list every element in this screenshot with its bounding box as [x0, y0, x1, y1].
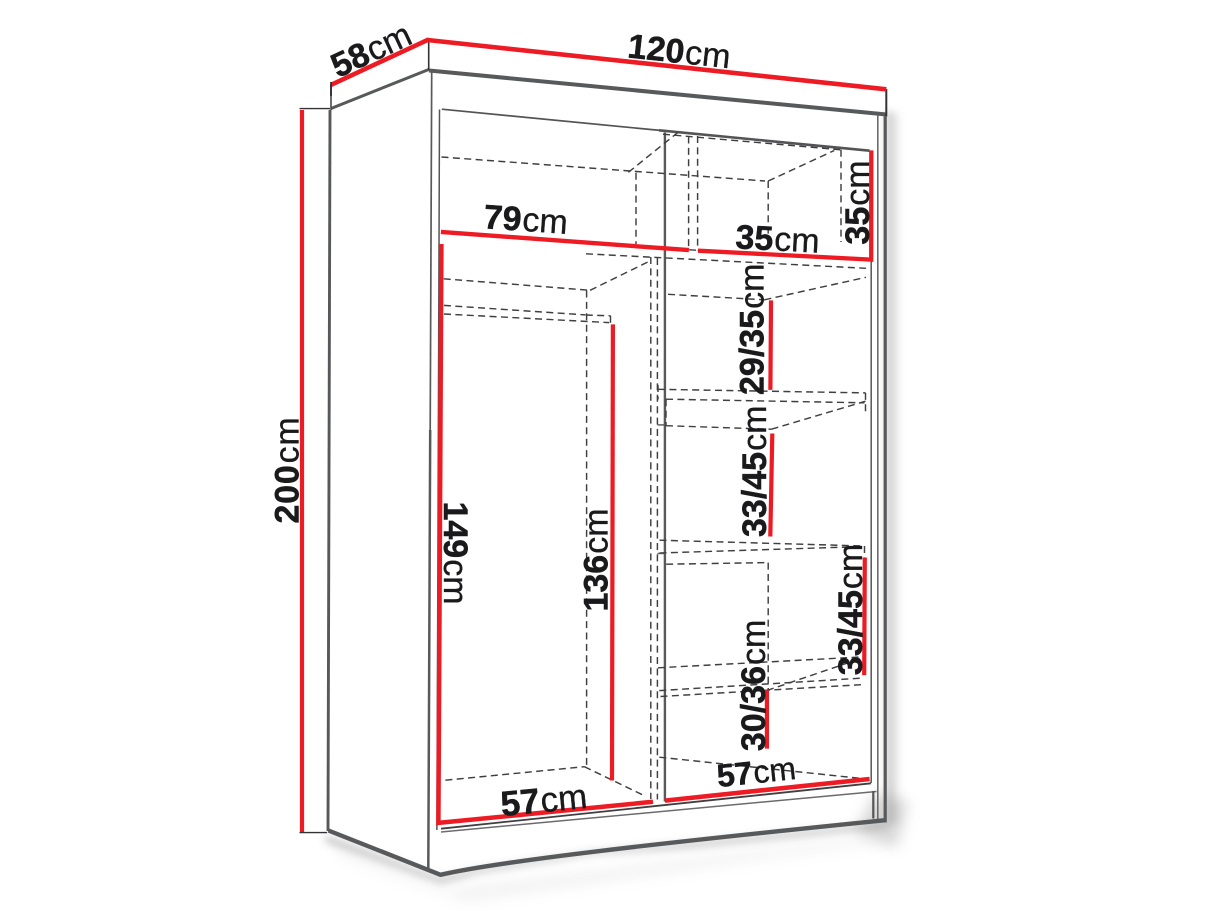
svg-text:30/36cm: 30/36cm: [735, 620, 773, 751]
svg-text:57cm: 57cm: [499, 777, 589, 824]
svg-text:35cm: 35cm: [839, 160, 877, 244]
svg-text:79cm: 79cm: [482, 198, 569, 242]
svg-text:33/45cm: 33/45cm: [736, 406, 774, 537]
svg-text:33/45cm: 33/45cm: [832, 544, 870, 675]
svg-text:200cm: 200cm: [269, 416, 307, 523]
svg-text:29/35cm: 29/35cm: [734, 264, 772, 395]
svg-text:136cm: 136cm: [578, 508, 616, 611]
svg-text:149cm: 149cm: [436, 501, 474, 604]
svg-text:35cm: 35cm: [735, 218, 821, 260]
